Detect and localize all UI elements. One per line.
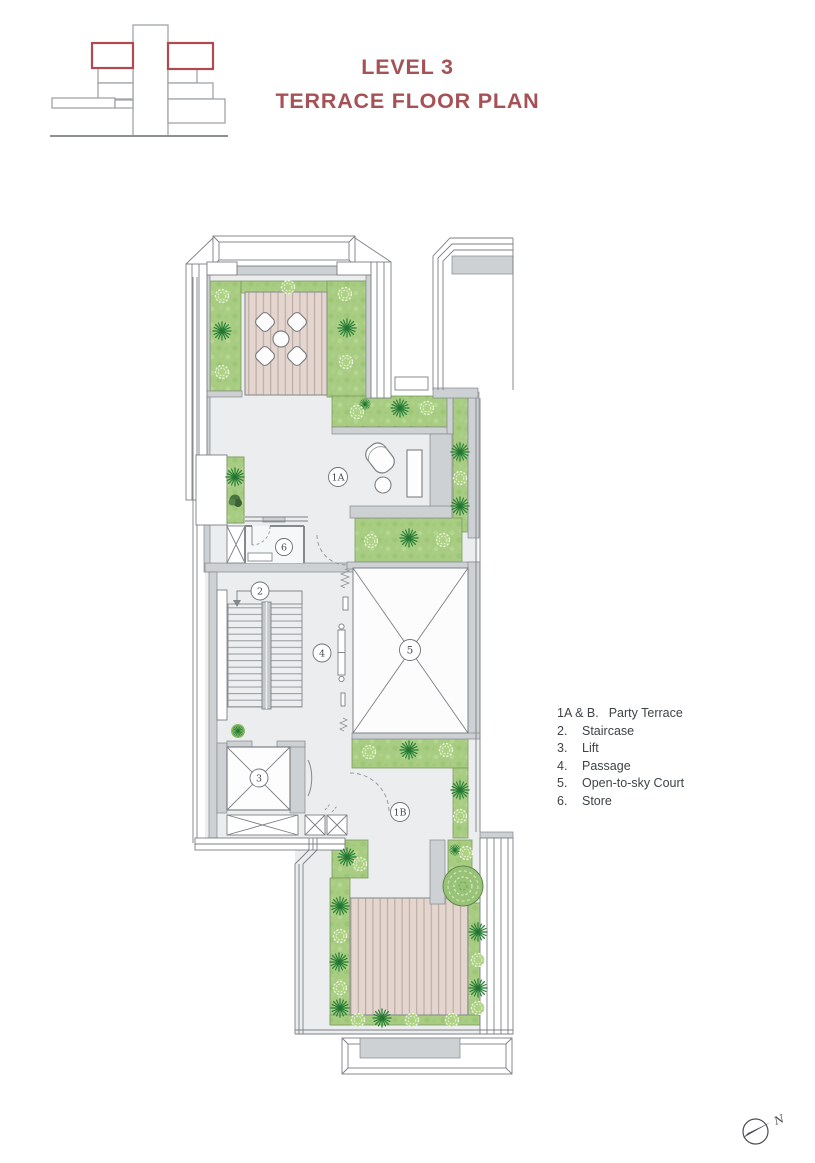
svg-text:1A: 1A (332, 473, 345, 484)
label-store: 6 (276, 539, 293, 556)
label-passage: 4 (313, 644, 331, 662)
terrace-floor-plan-page: 1A 1B 2 3 4 5 (0, 0, 815, 1163)
legend-item-passage: 4. Passage (557, 758, 684, 776)
title-line-1: LEVEL 3 (0, 50, 815, 84)
legend-item-staircase: 2. Staircase (557, 723, 684, 741)
label-lift: 3 (250, 769, 268, 787)
legend-item-party-terrace: 1A & B. Party Terrace (557, 705, 684, 723)
label-party-terrace-1b: 1B (391, 803, 410, 822)
north-label: N (771, 1112, 786, 1128)
legend-item-court: 5. Open-to-sky Court (557, 775, 684, 793)
legend-num: 5. (557, 775, 572, 793)
title-line-2: TERRACE FLOOR PLAN (0, 84, 815, 118)
north-arrow: N (743, 1112, 786, 1144)
label-staircase: 2 (251, 582, 269, 600)
side-table (375, 477, 391, 493)
svg-text:3: 3 (256, 774, 262, 785)
staircase (228, 591, 302, 709)
svg-text:4: 4 (319, 649, 325, 660)
legend-label: Store (582, 793, 612, 811)
legend-label: Staircase (582, 723, 634, 741)
round-table (273, 331, 289, 347)
legend-label: Open-to-sky Court (582, 775, 684, 793)
legend-num: 6. (557, 793, 572, 811)
label-party-terrace-1a: 1A (329, 468, 348, 487)
floor-plan-drawing: 1A 1B 2 3 4 5 (0, 0, 815, 1163)
svg-text:1B: 1B (393, 808, 406, 819)
bench (407, 450, 422, 497)
north-arrow-circle (743, 1119, 768, 1144)
main-plan: 1A 1B 2 3 4 5 (186, 236, 513, 1074)
legend-num: 4. (557, 758, 572, 776)
bottom-parapet-wall (360, 1038, 460, 1058)
svg-text:6: 6 (281, 543, 287, 554)
legend-label: Party Terrace (609, 705, 683, 723)
store-room (245, 526, 304, 563)
legend-item-lift: 3. Lift (557, 740, 684, 758)
planter-green (227, 457, 244, 523)
plan-title: LEVEL 3 TERRACE FLOOR PLAN (0, 50, 815, 118)
legend: 1A & B. Party Terrace 2. Staircase 3. Li… (557, 705, 684, 811)
legend-num: 1A & B. (557, 705, 599, 723)
legend-label: Passage (582, 758, 631, 776)
legend-label: Lift (582, 740, 599, 758)
label-court: 5 (400, 640, 421, 661)
svg-text:5: 5 (407, 645, 414, 657)
legend-item-store: 6. Store (557, 793, 684, 811)
legend-num: 2. (557, 723, 572, 741)
svg-text:2: 2 (257, 587, 263, 598)
legend-num: 3. (557, 740, 572, 758)
